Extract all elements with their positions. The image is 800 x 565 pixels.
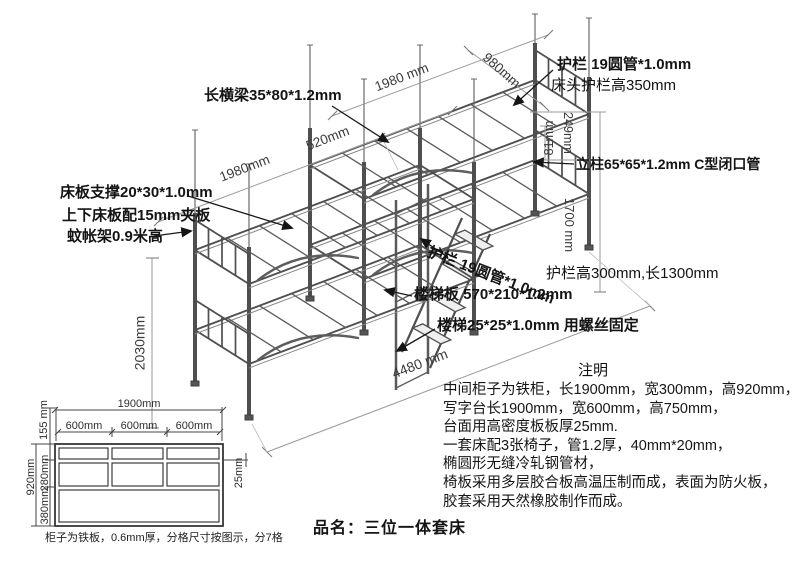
notes-title: 注明 [578, 363, 608, 380]
note-line: 台面用高密度板板厚25mm. [443, 418, 799, 437]
cab-dim-cell-3: 600mm [176, 420, 213, 432]
spec-sheet: 长横梁35*80*1.2mm 护栏 19圆管*1.0mm 床头护栏高350mm … [0, 0, 800, 565]
note-line: 椅板采用多层胶合板高温压制而成，表面为防火板， [443, 474, 799, 493]
cab-dim-total-width: 1900mm [118, 398, 161, 410]
note-line: 写字台长1900mm，宽600mm，高750mm， [443, 400, 799, 419]
product-name: 品名：三位一体套床 [313, 520, 466, 538]
callout-head-guard: 床头护栏高350mm [551, 78, 676, 95]
cabinet-caption: 柜子为铁板，0.6mm厚，分格尺寸按图示，分7格 [45, 529, 283, 545]
dim-rail-offset: 81mm [543, 121, 557, 156]
note-line: 一套床配3张椅子，管1.2厚，40mm*20mm， [443, 437, 799, 456]
callout-bed-board: 上下床板配15mm夹板 [62, 208, 210, 225]
callout-long-beam: 长横梁35*80*1.2mm [204, 88, 342, 105]
callout-bed-support: 床板支撑20*30*1.0mm [60, 185, 213, 202]
note-line: 胶套采用天然橡胶制作而成。 [443, 493, 799, 512]
cab-dim-total-height: 920mm [25, 459, 37, 496]
callout-ladder: 楼梯25*25*1.0mm 用螺丝固定 [437, 318, 639, 335]
callout-guard-size: 护栏高300mm,长1300mm [546, 266, 719, 283]
callout-post-spec: 立柱65*65*1.2mm C型闭口管 [576, 157, 760, 172]
dim-left-height: 2030mm [132, 316, 147, 370]
cab-dim-cell-1: 600mm [66, 420, 103, 432]
notes-block: 中间柜子为铁柜，长1900mm，宽300mm，高920mm， 写字台长1900m… [443, 381, 799, 511]
cab-dim-row1: 155 mm [38, 400, 50, 440]
cab-dim-board-thickness: 25mm [233, 458, 245, 489]
note-line: 椭圆形无缝冷轧钢管材， [443, 455, 799, 474]
callout-ladder-board: 楼梯板 570*210*1.2mm [414, 287, 572, 304]
cab-dim-row3: 380mm [39, 488, 51, 525]
cab-dim-row2: 280mm [39, 455, 51, 492]
dim-guard-height: 249mm [560, 112, 574, 154]
note-line: 中间柜子为铁柜，长1900mm，宽300mm，高920mm， [443, 381, 799, 400]
callout-net-frame: 蚊帐架0.9米高 [67, 229, 163, 246]
callout-top-guard: 护栏 19圆管*1.0mm [557, 57, 691, 74]
dim-lower-height: 1700 mm [562, 198, 576, 252]
cab-dim-cell-2: 600mm [121, 420, 158, 432]
